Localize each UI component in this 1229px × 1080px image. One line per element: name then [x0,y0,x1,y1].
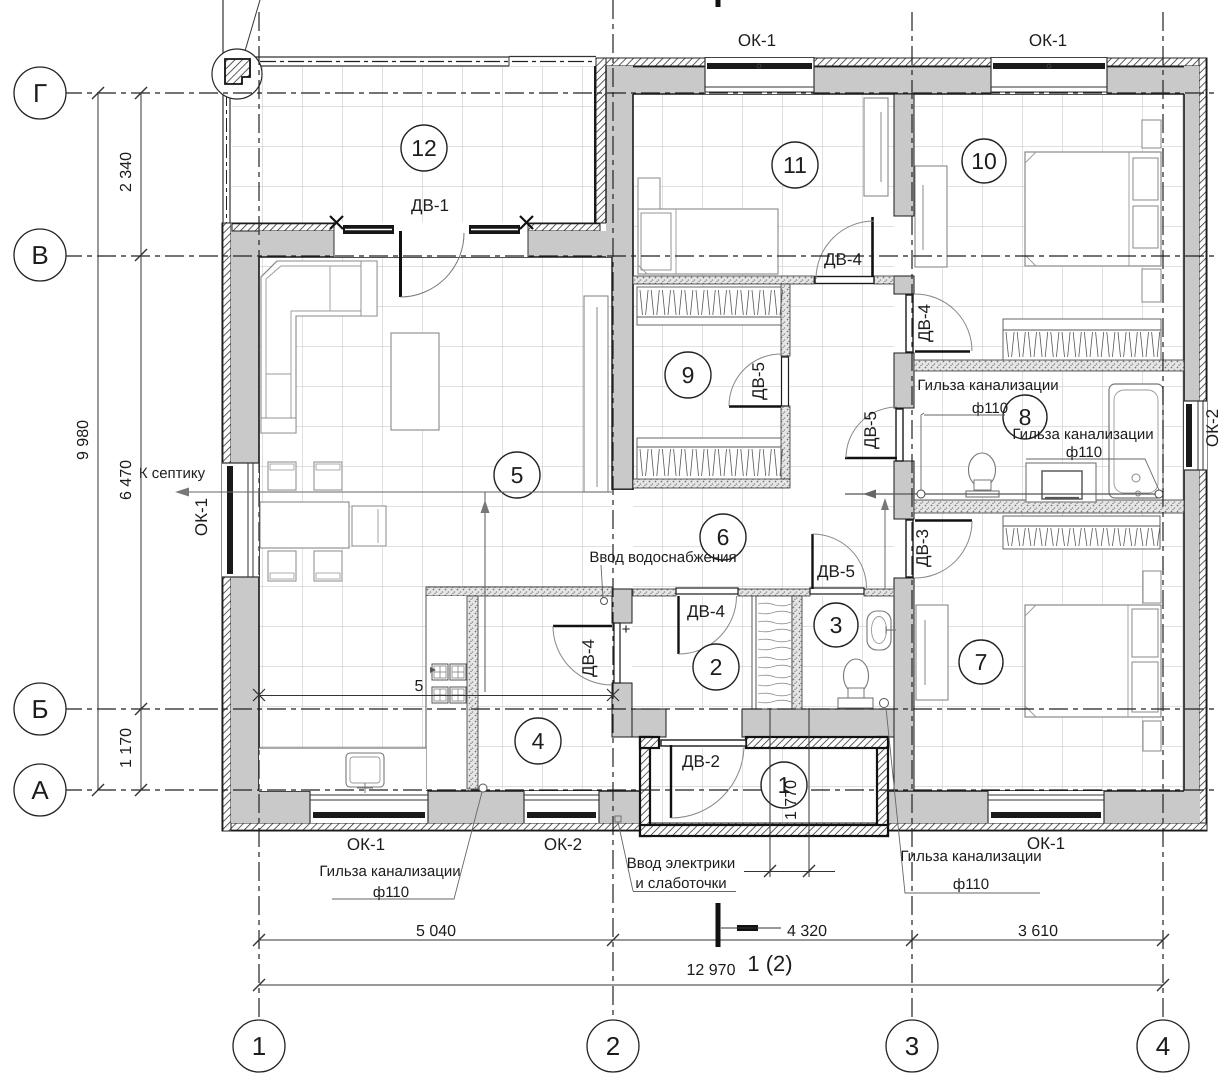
svg-text:ОК-1: ОК-1 [192,498,211,536]
svg-text:5: 5 [511,462,524,488]
svg-text:ДВ-2: ДВ-2 [682,752,720,771]
svg-text:7: 7 [975,649,988,675]
svg-text:ОК-1: ОК-1 [738,31,776,50]
svg-text:Ввод водоснабжения: Ввод водоснабжения [589,549,736,566]
svg-text:В: В [31,240,48,270]
svg-text:6: 6 [717,524,730,550]
svg-text:ф110: ф110 [1066,444,1102,461]
svg-text:6 470: 6 470 [118,460,135,500]
svg-text:2: 2 [710,654,723,680]
svg-text:Гильза канализации: Гильза канализации [900,848,1041,865]
svg-text:Гильза канализации: Гильза канализации [917,377,1058,394]
svg-text:Б: Б [31,694,48,724]
svg-text:12: 12 [411,135,437,161]
svg-text:9 980: 9 980 [75,420,92,460]
svg-text:ДВ-5: ДВ-5 [817,562,855,581]
svg-text:5: 5 [415,678,424,695]
svg-text:ОК-2: ОК-2 [1203,409,1222,447]
svg-text:Г: Г [33,78,47,108]
svg-text:ф110: ф110 [972,400,1008,417]
svg-text:12 970: 12 970 [687,962,736,979]
svg-text:ДВ-4: ДВ-4 [824,250,862,269]
svg-text:К септику: К септику [139,465,206,482]
svg-text:ОК-1: ОК-1 [1029,31,1067,50]
svg-text:ОК-2: ОК-2 [544,835,582,854]
svg-text:1 170: 1 170 [118,728,135,768]
svg-text:ДВ-4: ДВ-4 [687,602,725,621]
svg-text:10: 10 [971,148,997,174]
svg-text:4 320: 4 320 [787,923,827,940]
svg-text:+: + [622,621,631,638]
svg-text:1 (2): 1 (2) [747,951,792,976]
svg-text:ф110: ф110 [373,884,409,901]
svg-text:2: 2 [606,1031,620,1061]
svg-text:2 340: 2 340 [118,152,135,192]
svg-text:Гильза канализации: Гильза канализации [319,863,460,880]
svg-text:1: 1 [252,1031,266,1061]
svg-text:11: 11 [783,152,807,178]
svg-text:ДВ-5: ДВ-5 [861,411,880,449]
svg-text:1 770: 1 770 [783,780,800,820]
svg-text:ф110: ф110 [953,876,989,893]
svg-text:ДВ-4: ДВ-4 [915,304,934,342]
svg-text:Гильза канализации: Гильза канализации [1012,426,1153,443]
svg-text:ДВ-3: ДВ-3 [913,529,932,567]
svg-text:ДВ-5: ДВ-5 [749,362,768,400]
svg-text:9: 9 [682,362,695,388]
svg-text:4: 4 [532,728,545,754]
svg-text:А: А [31,775,49,805]
svg-text:4: 4 [1156,1031,1170,1061]
svg-text:ОК-1: ОК-1 [347,835,385,854]
svg-text:Ввод электрики: Ввод электрики [627,855,735,872]
svg-text:и слаботочки: и слаботочки [635,875,726,892]
svg-text:3 610: 3 610 [1018,923,1058,940]
svg-text:3: 3 [905,1031,919,1061]
svg-text:5 040: 5 040 [416,923,456,940]
svg-text:ДВ-1: ДВ-1 [411,196,449,215]
svg-text:ДВ-4: ДВ-4 [579,639,598,677]
svg-text:3: 3 [830,612,843,638]
